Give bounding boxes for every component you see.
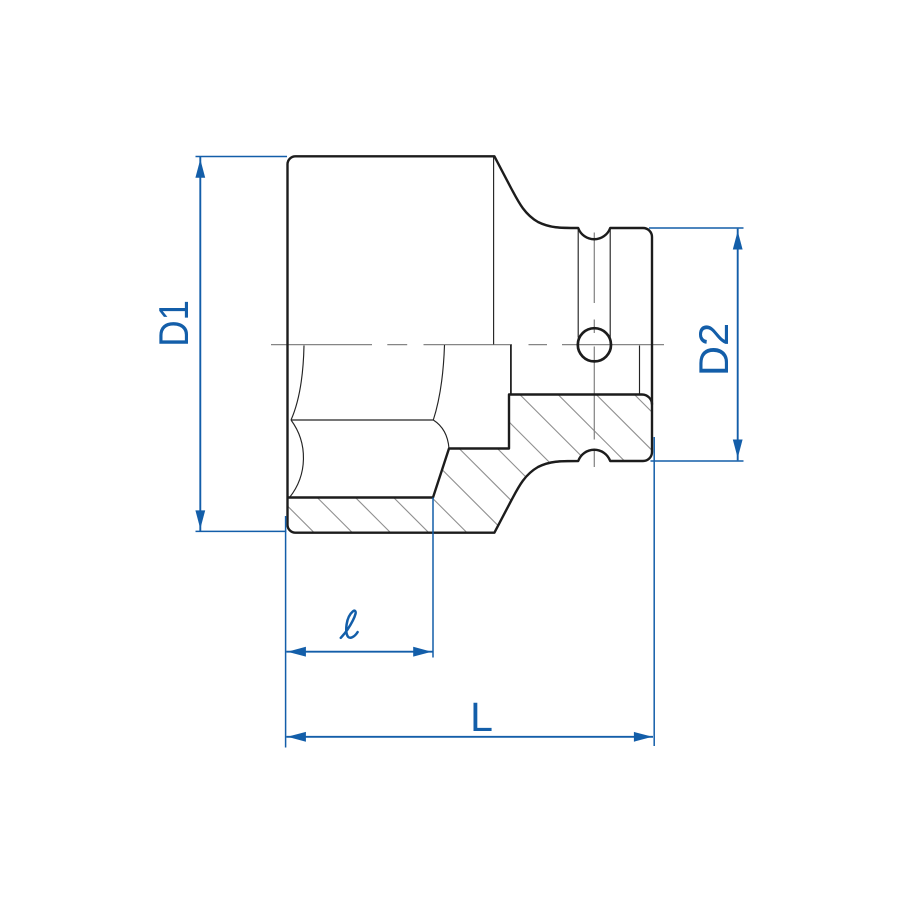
svg-text:L: L: [470, 694, 493, 740]
svg-text:D1: D1: [151, 300, 198, 347]
svg-text:D2: D2: [690, 323, 737, 376]
